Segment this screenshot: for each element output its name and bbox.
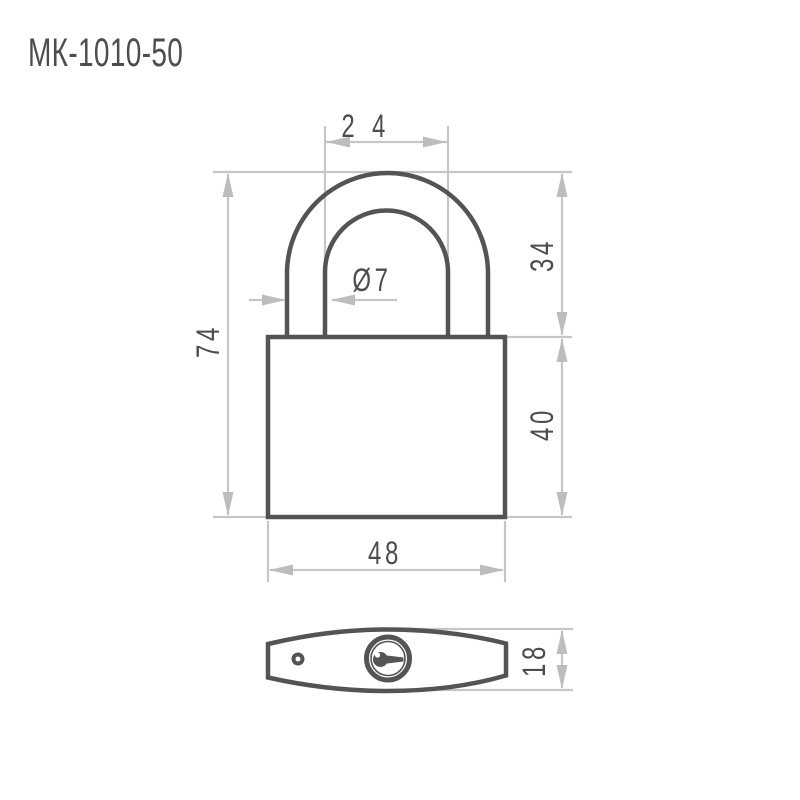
padlock-front-view	[268, 173, 505, 517]
arrowhead	[557, 173, 568, 197]
arrowhead	[557, 312, 568, 336]
padlock-drawing-canvas: 24 74 34 40 48 Ø7 18	[0, 0, 800, 800]
arrowhead	[223, 173, 234, 197]
technical-drawing-page: МК-1010-50	[0, 0, 800, 800]
dimension-label-body-width: 48	[368, 535, 402, 571]
dimension-label-body-thickness: 18	[516, 643, 552, 677]
dimension-label-shackle-diameter: Ø7	[352, 262, 391, 298]
keyhole-notch	[375, 652, 380, 657]
arrowhead	[557, 630, 568, 654]
arrowhead	[269, 565, 293, 576]
arrowhead	[331, 295, 355, 306]
dimension-label-shackle-height: 34	[524, 238, 560, 272]
dimension-label-shackle-inner-width: 24	[341, 108, 402, 144]
shackle-outer-contour	[287, 173, 488, 339]
arrowhead	[557, 492, 568, 516]
arrowhead	[262, 295, 286, 306]
arrowhead	[480, 565, 504, 576]
dimension-label-body-height: 40	[524, 407, 560, 441]
arrowhead	[223, 492, 234, 516]
lock-body	[268, 337, 505, 517]
arrowhead	[557, 665, 568, 689]
arrowhead	[423, 137, 447, 148]
padlock-bottom-view	[268, 630, 506, 692]
dimension-label-overall-height: 74	[190, 324, 226, 358]
arrowhead	[557, 338, 568, 362]
